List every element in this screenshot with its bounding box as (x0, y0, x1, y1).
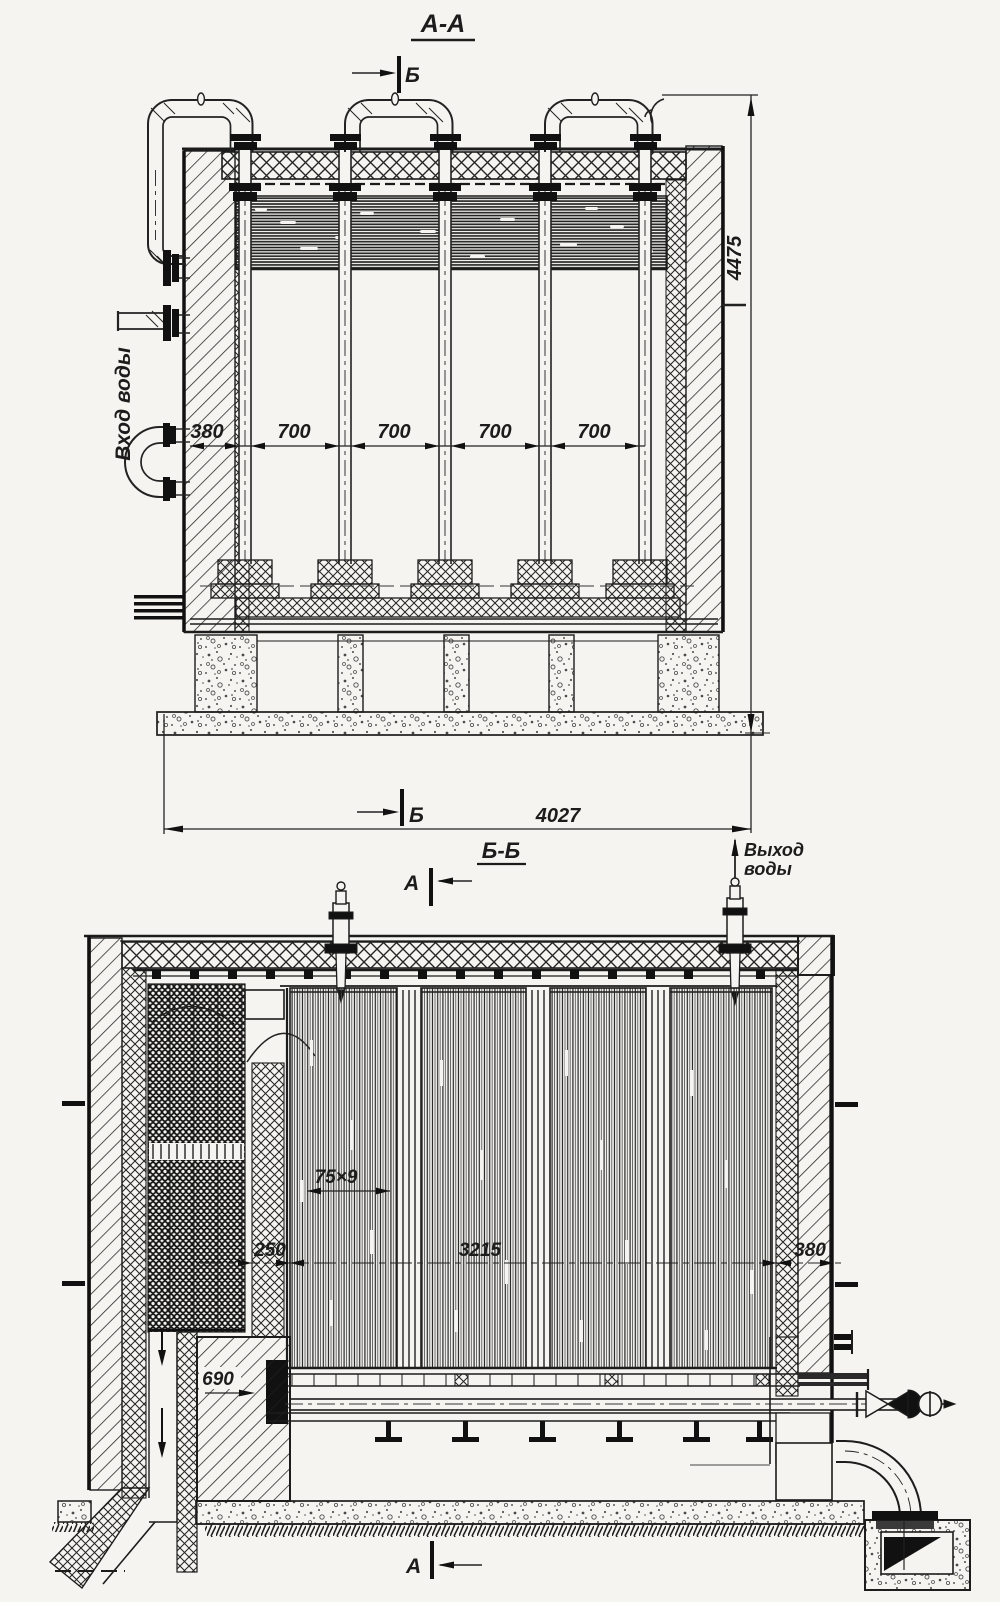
svg-text:690: 690 (202, 1369, 234, 1390)
svg-text:700: 700 (277, 421, 310, 443)
svg-text:Б-Б: Б-Б (482, 838, 520, 863)
svg-text:380: 380 (190, 421, 223, 443)
svg-text:75×9: 75×9 (315, 1167, 358, 1188)
svg-text:3215: 3215 (459, 1240, 502, 1261)
svg-text:воды: воды (744, 859, 793, 879)
svg-text:Вход воды: Вход воды (112, 347, 135, 461)
svg-text:4027: 4027 (535, 805, 581, 827)
svg-text:Выход: Выход (744, 840, 804, 860)
svg-text:700: 700 (478, 421, 511, 443)
svg-text:250: 250 (253, 1240, 286, 1261)
svg-text:А: А (405, 1555, 421, 1578)
svg-text:А-А: А-А (420, 10, 465, 38)
svg-text:А: А (403, 872, 419, 895)
svg-text:380: 380 (794, 1240, 826, 1261)
svg-text:Б: Б (409, 804, 424, 827)
svg-text:700: 700 (377, 421, 410, 443)
svg-text:Б: Б (405, 64, 420, 87)
svg-text:700: 700 (577, 421, 610, 443)
svg-text:4475: 4475 (724, 235, 746, 281)
